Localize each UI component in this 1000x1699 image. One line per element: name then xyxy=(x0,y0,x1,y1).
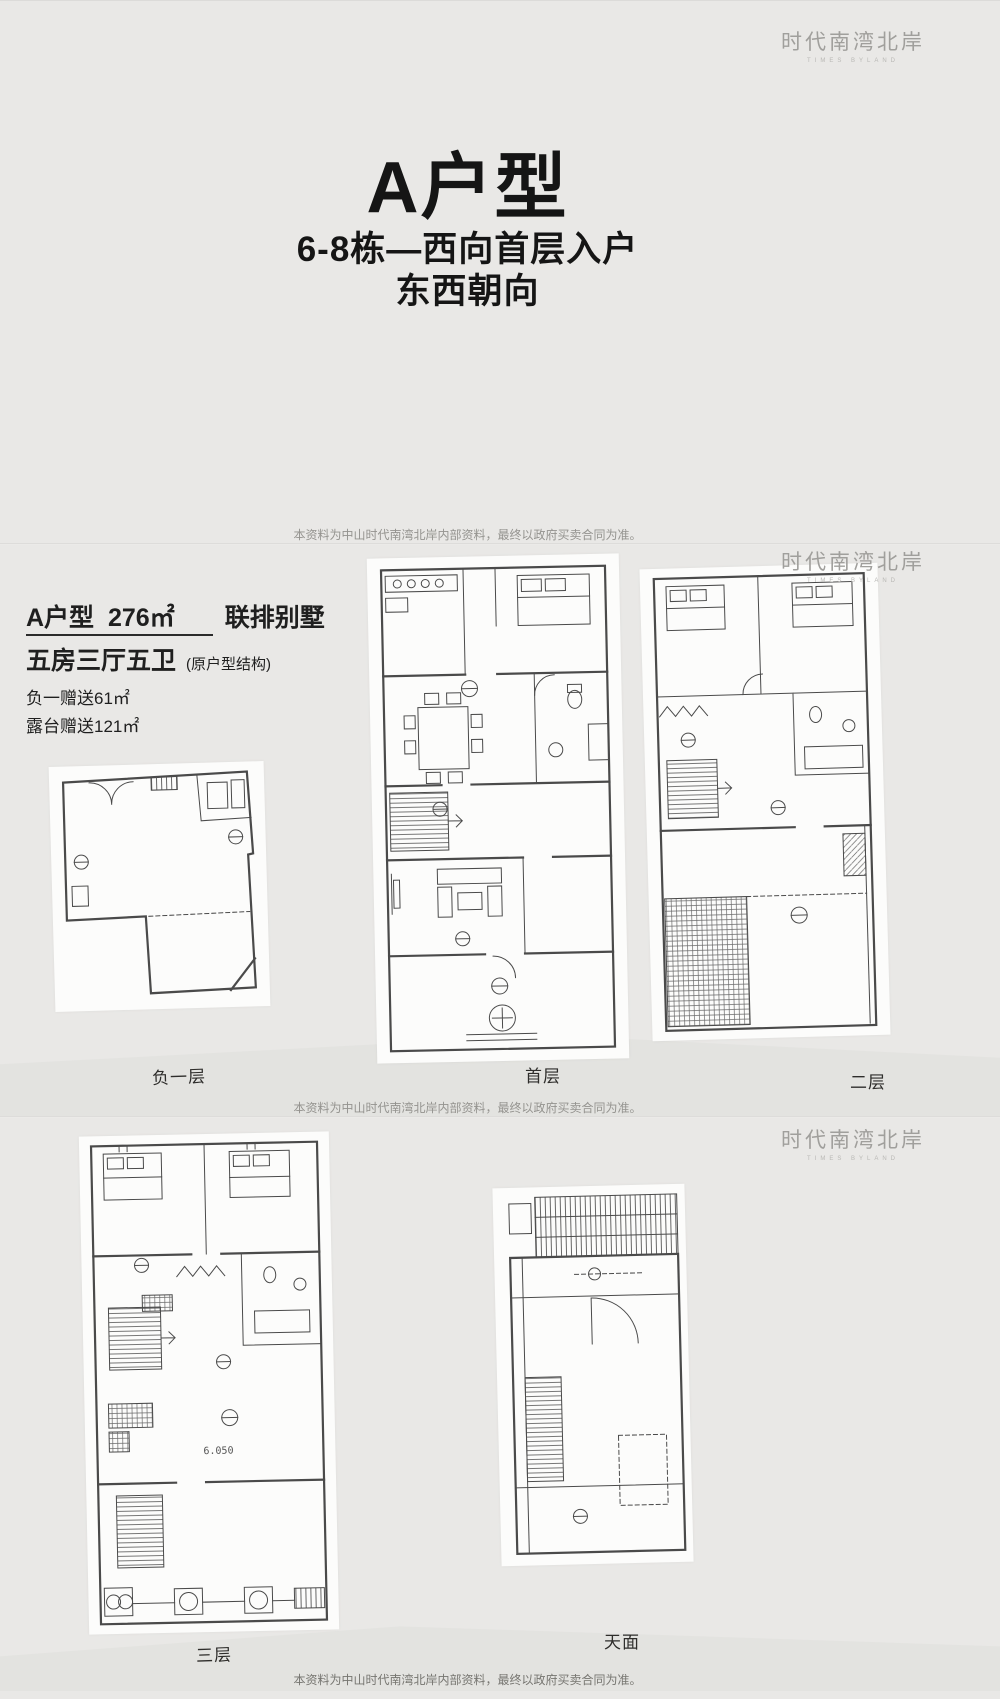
brand-name-en: TIMES BYLAND xyxy=(768,1156,938,1162)
panel-divider xyxy=(0,1116,1000,1118)
disclaimer-text: 本资料为中山时代南湾北岸内部资料，最终以政府买卖合同为准。 xyxy=(0,526,935,543)
unit-summary: A户型 276㎡联排别墅 五房三厅五卫(原户型结构) 负一赠送61㎡ 露台赠送1… xyxy=(26,598,325,737)
bonus-terrace: 露台赠送121㎡ xyxy=(26,712,325,737)
floor-plan-sheet-first xyxy=(367,553,630,1063)
unit-type: 联排别墅 xyxy=(225,604,325,632)
floor-plan-label-roof: 天面 xyxy=(604,1628,640,1653)
floor-plan-sheet-second xyxy=(639,563,890,1041)
bonus-basement: 负一赠送61㎡ xyxy=(26,684,325,709)
page-title: A户型 xyxy=(0,128,935,233)
roof-plan-drawing xyxy=(492,1184,693,1567)
disclaimer-text: 本资料为中山时代南湾北岸内部资料，最终以政府买卖合同为准。 xyxy=(0,1099,935,1116)
brochure-page: 时代南湾北岸 TIMES BYLAND A户型 6-8栋—西向首层入户 东西朝向… xyxy=(0,0,1000,1699)
first-floor-plan-drawing xyxy=(367,553,630,1063)
third-floor-plan-drawing: 6.050 xyxy=(79,1131,339,1634)
brand-logo: 时代南湾北岸 TIMES BYLAND xyxy=(768,546,938,584)
unit-name-area: A户型 276㎡ xyxy=(26,598,213,636)
basement-floor-plan-drawing xyxy=(49,761,271,1012)
floor-plan-sheet-third: 6.050 xyxy=(79,1131,339,1634)
unit-title-line: A户型 276㎡联排别墅 xyxy=(26,598,325,636)
brand-name-cn: 时代南湾北岸 xyxy=(768,26,938,56)
floor-plan-label-basement: 负一层 xyxy=(152,1062,207,1089)
brand-logo: 时代南湾北岸 TIMES BYLAND xyxy=(768,26,938,64)
brand-name-en: TIMES BYLAND xyxy=(768,578,938,584)
panel-divider xyxy=(0,543,1000,545)
unit-rooms: 五房三厅五卫 xyxy=(26,647,176,675)
unit-rooms-line: 五房三厅五卫(原户型结构) xyxy=(26,641,325,677)
floor-plan-label-second: 二层 xyxy=(850,1068,886,1093)
brand-name-cn: 时代南湾北岸 xyxy=(768,1124,938,1154)
brand-logo: 时代南湾北岸 TIMES BYLAND xyxy=(768,1124,938,1162)
second-floor-plan-drawing xyxy=(639,563,890,1041)
floor-plan-sheet-roof xyxy=(492,1184,693,1567)
brand-name-cn: 时代南湾北岸 xyxy=(768,546,938,576)
disclaimer-text: 本资料为中山时代南湾北岸内部资料，最终以政府买卖合同为准。 xyxy=(0,1671,935,1688)
page-bottom-strip xyxy=(0,0,1000,1)
floor-plan-label-first: 首层 xyxy=(525,1062,561,1087)
level-annotation: 6.050 xyxy=(203,1446,233,1458)
page-subtitle-facing: 东西朝向 xyxy=(0,263,935,314)
brand-name-en: TIMES BYLAND xyxy=(768,58,938,64)
floor-plan-label-third: 三层 xyxy=(196,1640,233,1666)
floor-plan-sheet-basement xyxy=(49,761,271,1012)
unit-rooms-note: (原户型结构) xyxy=(186,656,271,673)
